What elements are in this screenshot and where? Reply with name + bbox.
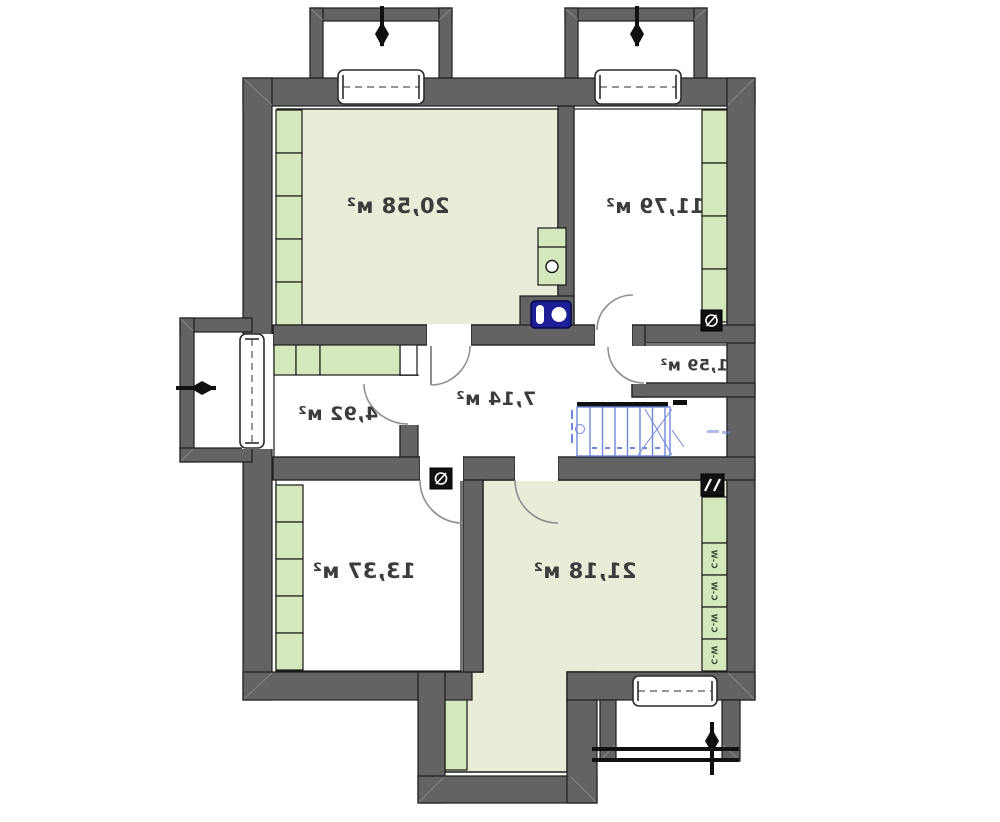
room-label-13-37: 13,37 м² [312, 559, 415, 583]
wall-unit-cell [276, 153, 302, 196]
stair-tick [673, 400, 687, 405]
wall-unit-cell [445, 695, 467, 770]
wall-unit-cell [276, 633, 303, 670]
cw-unit-label: C-W [710, 581, 719, 600]
wall-unit-cell [702, 497, 727, 543]
wall-unit-cell [702, 110, 727, 163]
sink-cabinet [538, 228, 566, 285]
window [595, 70, 681, 104]
partition-wall [463, 480, 483, 672]
wardrobe-cell [320, 343, 400, 375]
stair-landing-edge [577, 402, 668, 407]
wall-unit-cell [276, 522, 303, 559]
toilet-icon [531, 301, 571, 328]
room-label-20-58: 20,58 м² [346, 194, 449, 218]
floor-plan-drawing [0, 0, 1000, 822]
wardrobe-cell [274, 343, 296, 375]
wall-unit-cell [276, 239, 302, 282]
room-label-21-18: 21,18 м² [533, 559, 636, 583]
wall-unit-cell [702, 163, 727, 216]
cw-unit-label: C-W [710, 645, 719, 664]
vent-grille-icon [701, 474, 724, 496]
room-label-1-59: 1,59 м² [660, 356, 728, 375]
room-label-4-92: 4,92 м² [298, 403, 378, 425]
room-label-7-14: 7,14 м² [456, 388, 536, 410]
cw-unit-label: C-W [710, 613, 719, 632]
floor-drain-icon [430, 468, 452, 489]
room-label-11-79: 11,79 м² [606, 194, 705, 218]
wall-unit-cell [276, 485, 303, 522]
window [633, 676, 717, 706]
floor-drain-icon [701, 310, 722, 331]
floor-plan: 20,58 м² 11,79 м² 1,59 м² 4,92 м² 7,14 м… [0, 0, 1000, 822]
wardrobe-cell [296, 343, 320, 375]
sink-drain-icon [546, 261, 558, 273]
wall-unit-cell [276, 559, 303, 596]
window [240, 334, 264, 448]
wall-unit-cell [276, 196, 302, 239]
wall-unit-cell [276, 110, 302, 153]
wall-unit-cell [702, 216, 727, 269]
wall-unit-cell [276, 282, 302, 325]
window [338, 70, 424, 104]
wall-unit-cell [276, 596, 303, 633]
cw-unit-label: C-W [710, 549, 719, 568]
